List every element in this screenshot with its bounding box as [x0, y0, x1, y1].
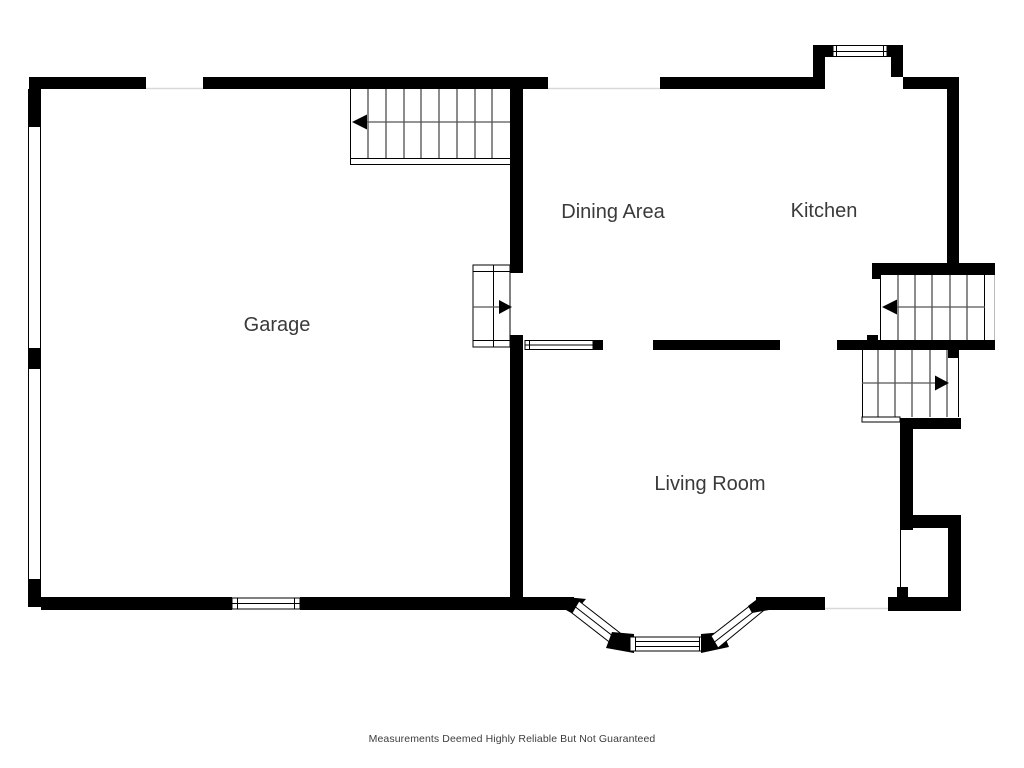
stairwell-right-notch [948, 350, 959, 358]
bay-window-center [630, 637, 705, 651]
bay-right-wall-cap [748, 597, 769, 613]
bumpout-top-wall-right [887, 45, 903, 57]
wall-right-lower [948, 520, 961, 611]
nook-left-wall [900, 429, 913, 530]
stairs-top [350, 89, 510, 165]
floorplan-page: Garage Dining Area Kitchen Living Room M… [0, 0, 1024, 768]
wall-bottom-garage-right [300, 597, 574, 610]
room-label-living: Living Room [654, 473, 765, 495]
stair-tread-lines [368, 89, 492, 158]
garage-left-wall-outline [29, 89, 41, 597]
wall-mid-segment-1 [653, 340, 780, 350]
nook-door-stub [897, 587, 908, 597]
dining-window-end-cap [593, 340, 603, 350]
exterior-walls [28, 45, 961, 611]
room-label-garage: Garage [244, 314, 311, 336]
wall-left-pier-bottom [28, 579, 41, 607]
wall-left-pier-top [29, 89, 41, 127]
floorplan-canvas: Garage Dining Area Kitchen Living Room [0, 0, 1024, 768]
bumpout-right-wall [891, 57, 903, 77]
stairs-right-lower-rail [862, 417, 900, 422]
stairwell-left-stub [872, 275, 880, 279]
bumpout-left-wall [813, 45, 825, 89]
room-label-dining: Dining Area [561, 201, 665, 223]
stairs-right-upper [881, 275, 986, 340]
wall-top-segment-2 [203, 77, 548, 89]
stairs-top-bottom-rail [350, 159, 510, 165]
stairwell-bottom-wall [900, 418, 961, 429]
wall-right-upper [947, 77, 959, 263]
wall-bottom-garage-left [41, 597, 232, 610]
windows [232, 46, 887, 610]
wall-mid-segment-2 [837, 340, 995, 350]
stair-arrow-left-icon [352, 115, 367, 130]
stairs-right-lower-edges [863, 350, 959, 422]
bumpout-top-wall-left [825, 45, 833, 57]
wall-mid-stub [867, 335, 878, 340]
wall-top-segment-3 [660, 77, 813, 89]
wall-garage-right-lower [510, 335, 523, 610]
room-label-kitchen: Kitchen [791, 200, 858, 222]
bay-window [566, 597, 769, 653]
stairwell-top-wall [872, 263, 995, 275]
stair-arrow-left-icon [882, 300, 897, 315]
wall-top-segment-1 [29, 77, 146, 89]
wall-garage-right-upper [510, 89, 523, 273]
garage-entry-steps [473, 265, 512, 347]
wall-left-pier-middle [28, 348, 41, 369]
disclaimer-text: Measurements Deemed Highly Reliable But … [0, 733, 1024, 745]
stairs-right-lower [862, 350, 959, 422]
